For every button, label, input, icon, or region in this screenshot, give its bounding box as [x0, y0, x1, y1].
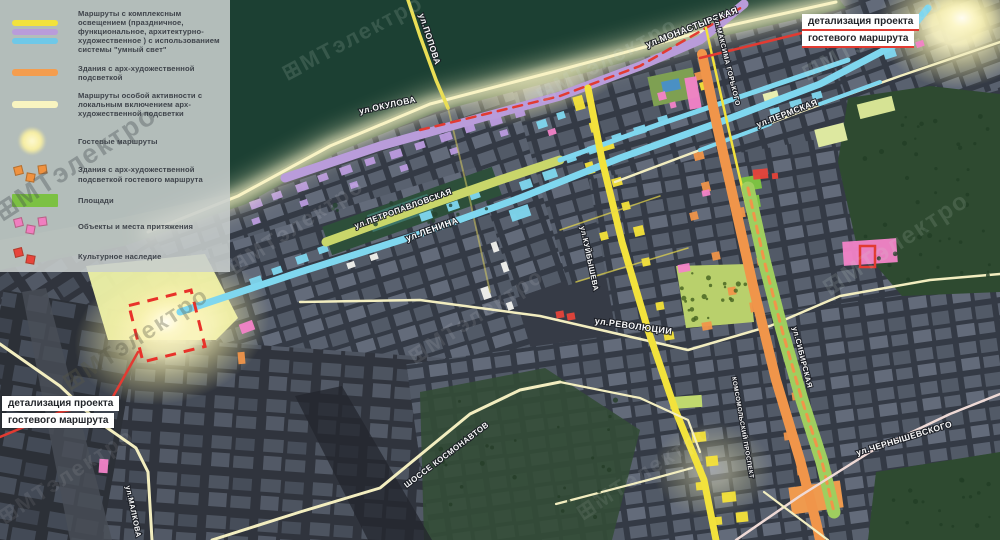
callout-line: гостевого маршрута	[802, 31, 914, 48]
legend-item-label: Маршруты с комплексным освещением (празд…	[78, 9, 222, 55]
legend-swatch-routes-complex	[12, 20, 70, 44]
building-yellow	[736, 511, 749, 522]
lighting-masterplan-map: ⊞МТэлектро⊞МТэлектро⊞МТэлектро⊞МТэлектро…	[0, 0, 1000, 540]
building-pink	[99, 459, 109, 474]
legend-swatch-attraction	[12, 216, 70, 237]
callout-line: детализация проекта	[802, 14, 919, 31]
legend-item-label: Здания с арх-художественной подсветкой г…	[78, 165, 222, 183]
legend-item-label: Здания с арх-художественной подсветкой	[78, 64, 222, 82]
building-orange	[237, 352, 245, 365]
legend-item-routes-activity: Маршруты особой активности с локальным в…	[12, 91, 222, 118]
legend-swatch-squares	[12, 194, 70, 207]
building-yellow	[706, 455, 719, 466]
legend-swatch-guest-routes	[12, 127, 70, 155]
building-red	[772, 173, 779, 180]
legend-swatch-buildings-arch	[12, 69, 70, 76]
legend-swatch-routes-activity	[12, 101, 70, 108]
legend-item-label: Культурное наследие	[78, 252, 222, 261]
building-orange	[701, 321, 712, 331]
callout-line: детализация проекта	[2, 396, 119, 411]
legend-item-attraction: Объекты и места притяжения	[12, 216, 222, 237]
legend-panel: Маршруты с комплексным освещением (празд…	[0, 0, 230, 272]
legend-item-guest-routes: Гостевые маршруты	[12, 127, 222, 155]
legend-item-buildings-guest: Здания с арх-художественной подсветкой г…	[12, 164, 222, 185]
building-red	[555, 310, 564, 318]
callout-line: гостевого маршрута	[2, 413, 114, 428]
building-red	[753, 168, 769, 180]
legend-item-label: Площади	[78, 196, 222, 205]
building-yellow	[722, 491, 737, 502]
zone-revolution-park	[676, 264, 754, 328]
callout-guest-route-detail-southwest: детализация проекта гостевого маршрута	[2, 396, 119, 430]
legend-item-label: Гостевые маршруты	[78, 137, 222, 146]
legend-swatch-heritage	[12, 246, 70, 267]
legend-item-routes-complex: Маршруты с комплексным освещением (празд…	[12, 9, 222, 55]
building-yellow	[655, 301, 664, 310]
building-orange	[711, 251, 720, 260]
legend-item-heritage: Культурное наследие	[12, 246, 222, 267]
legend-item-label: Маршруты особой активности с локальным в…	[78, 91, 222, 118]
building-red	[566, 312, 575, 320]
callout-guest-route-detail-northeast: детализация проекта гостевого маршрута	[802, 14, 919, 48]
legend-item-squares: Площади	[12, 194, 222, 207]
legend-item-label: Объекты и места притяжения	[78, 222, 222, 231]
building-pink	[842, 238, 898, 266]
legend-item-buildings-arch: Здания с арх-художественной подсветкой	[12, 64, 222, 82]
legend-swatch-buildings-guest	[12, 164, 70, 185]
